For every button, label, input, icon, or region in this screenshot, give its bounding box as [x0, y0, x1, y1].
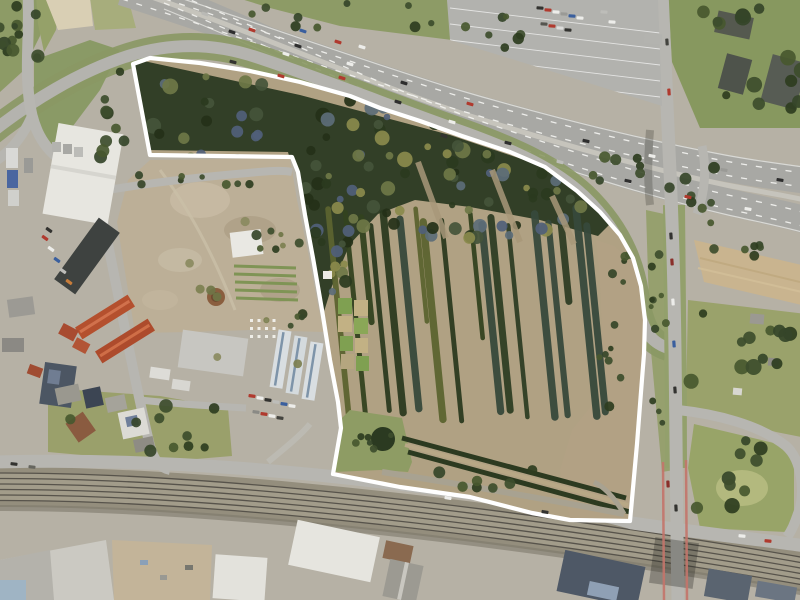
- building-white: [213, 554, 268, 600]
- truck: [24, 158, 33, 173]
- tree: [367, 200, 380, 213]
- tree: [154, 413, 164, 423]
- tree: [424, 143, 431, 150]
- tree: [272, 245, 280, 253]
- tree: [605, 357, 613, 365]
- container: [52, 142, 61, 152]
- tree: [295, 238, 304, 247]
- tree: [290, 21, 300, 31]
- tree: [724, 479, 736, 491]
- tree: [753, 98, 765, 110]
- tree: [608, 269, 617, 278]
- tree: [11, 1, 22, 12]
- tree: [257, 245, 264, 252]
- tree: [343, 0, 350, 7]
- tree: [707, 199, 715, 207]
- bridge-parapet: [663, 462, 664, 600]
- car: [674, 504, 678, 511]
- tree: [773, 325, 786, 338]
- tree: [484, 197, 494, 207]
- tree: [119, 136, 130, 147]
- tree: [343, 225, 355, 237]
- tree: [347, 185, 358, 196]
- tree: [339, 275, 352, 288]
- car: [560, 12, 567, 16]
- tree: [488, 483, 498, 493]
- hive-box: [250, 335, 253, 338]
- overpass-shadow: [648, 130, 650, 205]
- tree: [497, 221, 508, 232]
- tree: [503, 14, 509, 20]
- tree: [131, 417, 141, 427]
- container: [63, 144, 72, 154]
- debris: [160, 575, 167, 580]
- tree: [457, 482, 467, 492]
- hive-box: [250, 327, 253, 330]
- tree: [201, 443, 209, 451]
- tree: [608, 346, 614, 352]
- tree: [553, 187, 561, 195]
- tree: [96, 144, 109, 157]
- car: [600, 10, 607, 14]
- tree: [664, 182, 675, 193]
- tree: [234, 180, 241, 187]
- hive-box: [273, 319, 276, 322]
- tree: [321, 179, 331, 189]
- tree: [245, 180, 253, 188]
- debris: [185, 565, 193, 570]
- tree: [433, 466, 445, 478]
- tree: [309, 199, 320, 210]
- tree: [253, 130, 263, 140]
- tree: [513, 33, 524, 44]
- rail-underpass-shadow: [649, 537, 699, 589]
- tree: [375, 131, 390, 146]
- tree: [182, 431, 192, 441]
- tree: [294, 13, 303, 22]
- tree: [323, 133, 331, 141]
- hive-box: [273, 335, 276, 338]
- tree: [649, 297, 655, 303]
- tree: [735, 9, 751, 25]
- tree: [535, 222, 547, 234]
- tree: [405, 2, 412, 9]
- tree: [566, 194, 575, 203]
- tree: [101, 95, 110, 104]
- car: [576, 16, 583, 20]
- tree: [750, 454, 762, 466]
- container: [74, 147, 83, 157]
- site-shed: [323, 271, 332, 279]
- tree: [713, 17, 723, 27]
- tree: [144, 445, 156, 457]
- tree: [741, 436, 750, 445]
- tree: [288, 323, 294, 329]
- car: [540, 22, 547, 26]
- scrub-mottle: [158, 248, 202, 272]
- tree: [201, 98, 209, 106]
- tree: [500, 43, 509, 52]
- tree: [596, 176, 604, 184]
- tree: [707, 219, 714, 226]
- hive-box: [250, 319, 253, 322]
- car: [568, 14, 575, 18]
- tree: [299, 314, 305, 320]
- tree: [780, 50, 796, 66]
- tree: [724, 498, 739, 513]
- tree: [356, 219, 370, 233]
- tree: [485, 31, 492, 38]
- tree: [213, 353, 221, 361]
- tree: [461, 22, 470, 31]
- bridge-parapet: [686, 460, 687, 600]
- tree: [749, 251, 759, 261]
- tree: [746, 77, 762, 93]
- tree: [754, 442, 768, 456]
- tree: [240, 217, 249, 226]
- car: [671, 298, 675, 305]
- scrub-mottle: [142, 290, 178, 310]
- tree: [116, 68, 124, 76]
- tree: [483, 150, 492, 159]
- tree: [596, 354, 602, 360]
- tree: [633, 154, 642, 163]
- dirt-lot: [112, 540, 212, 600]
- tree: [310, 160, 321, 171]
- tree: [635, 168, 645, 178]
- tree: [452, 140, 464, 152]
- car: [665, 38, 669, 45]
- tree: [357, 433, 364, 440]
- tree: [310, 227, 322, 239]
- tree: [352, 439, 360, 447]
- tree: [611, 321, 619, 329]
- tree: [213, 292, 222, 301]
- tree: [449, 202, 455, 208]
- tree: [382, 208, 391, 217]
- tree: [386, 152, 394, 160]
- tree: [278, 232, 283, 237]
- tree: [739, 485, 750, 496]
- tree: [785, 75, 797, 87]
- tree: [528, 188, 539, 199]
- tree: [691, 502, 703, 514]
- tree: [648, 263, 656, 271]
- tree: [400, 168, 410, 178]
- tree: [365, 434, 372, 441]
- tree: [280, 243, 286, 249]
- tree: [395, 206, 405, 216]
- hive-box: [265, 327, 268, 330]
- tree: [100, 106, 112, 118]
- aerial-photo: [0, 0, 800, 600]
- tree: [527, 465, 537, 475]
- car: [667, 88, 671, 95]
- tree: [31, 9, 41, 19]
- tree: [209, 403, 220, 414]
- tree: [699, 309, 707, 317]
- tree: [741, 246, 749, 254]
- tree: [185, 259, 194, 268]
- tree: [505, 231, 513, 239]
- tree: [410, 21, 421, 32]
- tree: [31, 49, 44, 62]
- tree: [374, 120, 383, 129]
- tree: [656, 409, 662, 415]
- hive-box: [273, 327, 276, 330]
- tree: [599, 151, 610, 162]
- car: [738, 534, 745, 538]
- tree: [201, 115, 212, 126]
- tree: [384, 114, 391, 121]
- tree: [367, 440, 373, 446]
- car: [556, 26, 563, 30]
- tree: [313, 24, 321, 32]
- tree: [332, 202, 344, 214]
- car: [666, 480, 670, 487]
- tree: [6, 44, 19, 57]
- tree: [352, 150, 364, 162]
- tree: [604, 401, 614, 411]
- tree: [178, 173, 185, 180]
- tree: [306, 146, 315, 155]
- tree: [649, 398, 656, 405]
- tree: [154, 129, 164, 139]
- car: [548, 24, 555, 28]
- tree: [381, 181, 395, 195]
- tree: [178, 133, 189, 144]
- building-gray: [2, 338, 24, 352]
- tree: [735, 448, 746, 459]
- tree: [651, 325, 659, 333]
- tree: [326, 173, 332, 179]
- tree: [427, 222, 439, 234]
- tree: [472, 476, 482, 486]
- hive-box: [258, 319, 261, 322]
- roof-section: [47, 369, 61, 385]
- truck: [6, 148, 18, 168]
- tree: [659, 293, 664, 298]
- tree: [444, 168, 456, 180]
- tree: [443, 149, 452, 158]
- tree: [680, 173, 692, 185]
- tree: [709, 244, 719, 254]
- tree: [456, 181, 465, 190]
- tree: [659, 420, 665, 426]
- tree: [574, 200, 587, 213]
- tree: [231, 126, 243, 138]
- tree: [754, 3, 765, 14]
- tree: [364, 162, 374, 172]
- tree: [708, 162, 720, 174]
- tree: [262, 3, 271, 12]
- tree: [135, 171, 143, 179]
- hive-box: [258, 327, 261, 330]
- tree: [347, 118, 360, 131]
- tree: [202, 73, 209, 80]
- tree: [339, 240, 346, 247]
- hive-box: [265, 335, 268, 338]
- debris: [140, 560, 148, 565]
- tree: [370, 445, 378, 453]
- tree: [465, 206, 473, 214]
- tree: [65, 414, 75, 424]
- tree: [722, 91, 730, 99]
- tree: [428, 20, 434, 26]
- tree: [267, 228, 274, 235]
- building-gray: [7, 296, 35, 317]
- car: [544, 8, 551, 12]
- truck: [8, 190, 19, 206]
- building-corner: [0, 580, 26, 600]
- tree: [504, 478, 515, 489]
- car: [552, 10, 559, 14]
- car: [764, 539, 771, 543]
- car: [536, 6, 543, 10]
- tree: [698, 204, 707, 213]
- tree: [14, 30, 23, 39]
- allotment-shed: [733, 388, 743, 396]
- tree: [620, 279, 626, 285]
- tree: [388, 218, 400, 230]
- tree: [697, 6, 710, 19]
- tree: [737, 337, 746, 346]
- tree: [137, 180, 145, 188]
- tree: [318, 238, 326, 246]
- tree: [12, 23, 18, 29]
- tree: [662, 319, 670, 327]
- tree: [602, 351, 609, 358]
- tree: [293, 359, 302, 368]
- tree: [169, 443, 179, 453]
- car: [672, 340, 676, 347]
- car: [670, 258, 674, 265]
- tree: [337, 196, 344, 203]
- tree: [248, 10, 255, 17]
- tree: [222, 180, 231, 189]
- car: [564, 28, 571, 32]
- tree: [746, 359, 762, 375]
- tree: [388, 433, 394, 439]
- tree: [397, 152, 413, 168]
- tree: [449, 222, 462, 235]
- car: [608, 20, 615, 24]
- tree: [356, 188, 365, 197]
- tree: [249, 107, 263, 121]
- tree: [684, 374, 699, 389]
- tree: [184, 441, 194, 451]
- tree: [199, 174, 204, 179]
- tree: [255, 78, 268, 91]
- tree: [263, 317, 269, 323]
- tree: [111, 124, 121, 134]
- parking-access: [644, 34, 662, 45]
- aerial-photo-viewport: [0, 0, 800, 600]
- allotment-shed: [750, 313, 765, 324]
- tree: [196, 285, 205, 294]
- tree: [348, 214, 358, 224]
- tree: [251, 230, 261, 240]
- tree: [159, 399, 173, 413]
- tree: [771, 358, 782, 369]
- tree: [321, 112, 335, 126]
- tree: [239, 75, 252, 88]
- tree: [463, 232, 475, 244]
- tree: [649, 304, 654, 309]
- hive-box: [258, 335, 261, 338]
- tree: [750, 242, 758, 250]
- tree: [610, 154, 621, 165]
- tree: [236, 111, 247, 122]
- tree: [617, 374, 625, 382]
- car: [673, 386, 677, 393]
- tree: [329, 288, 336, 295]
- car: [669, 232, 673, 239]
- tree: [162, 78, 178, 94]
- tree: [655, 250, 664, 259]
- truck: [7, 170, 18, 188]
